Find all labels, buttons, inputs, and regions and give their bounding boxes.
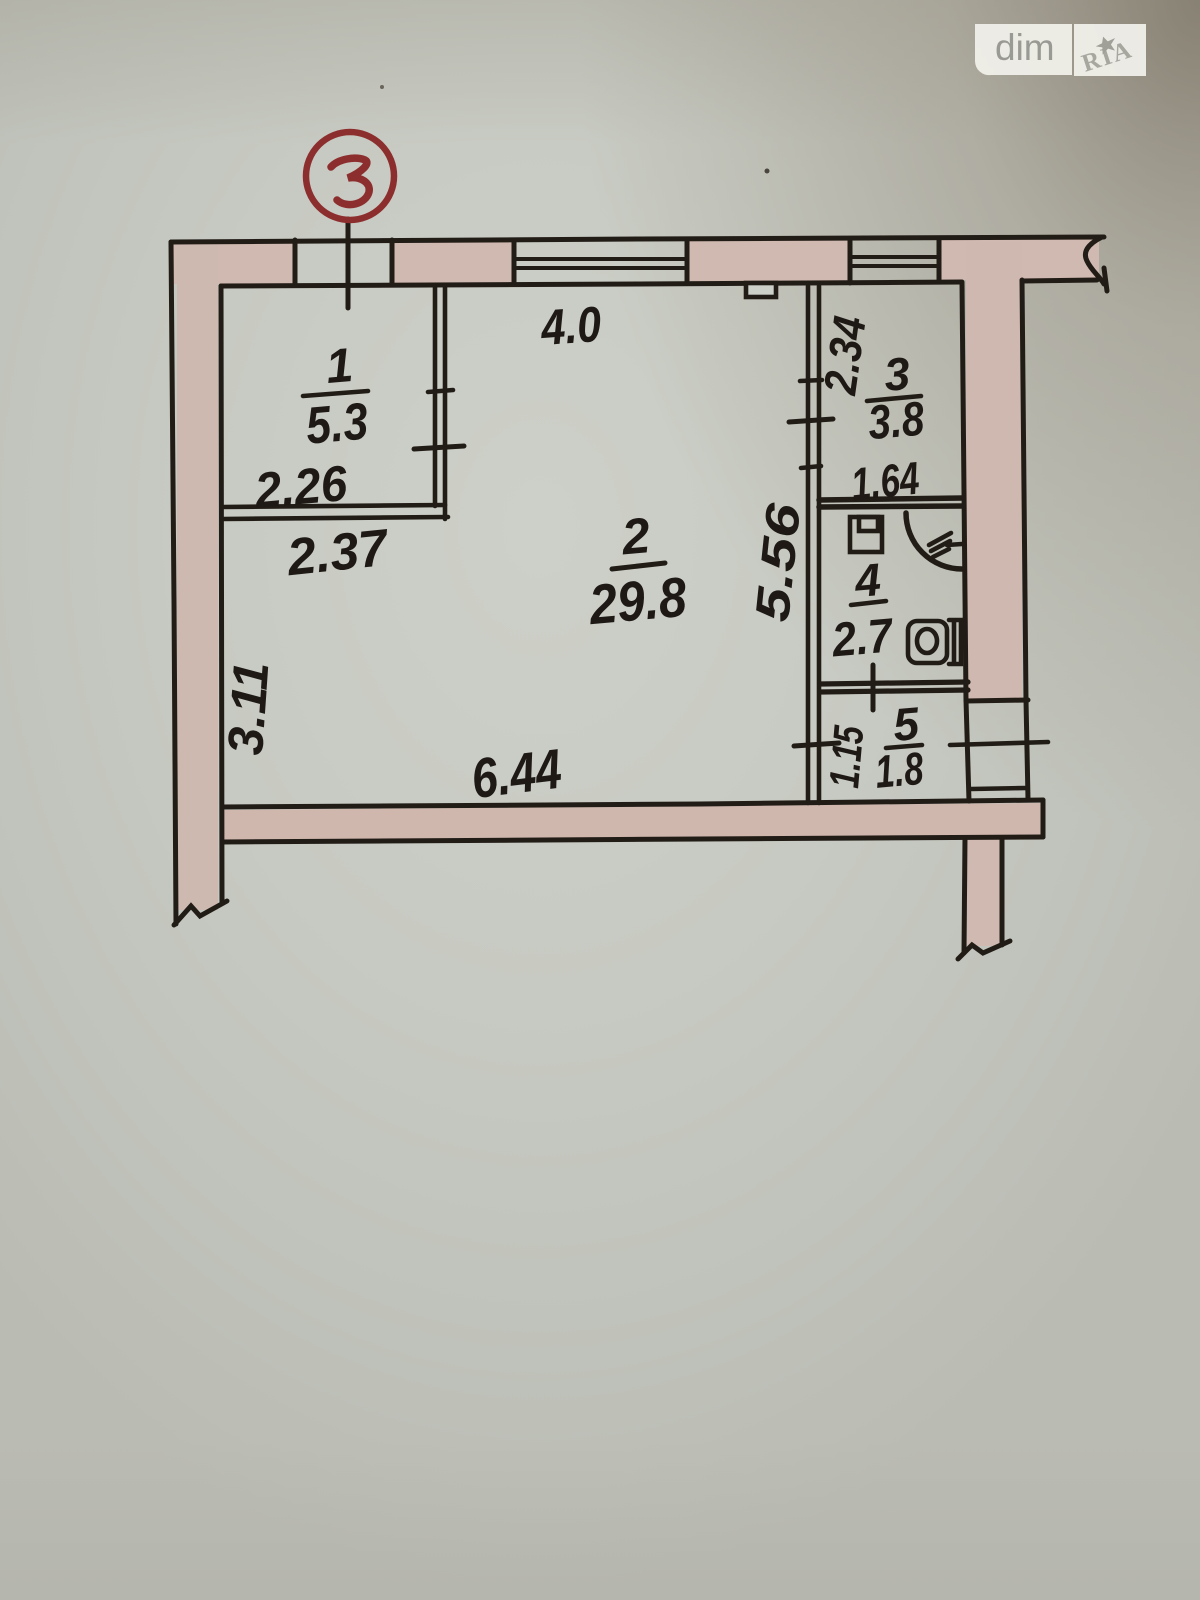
- svg-text:3.8: 3.8: [866, 393, 927, 451]
- svg-text:2.7: 2.7: [829, 609, 896, 667]
- svg-text:29.8: 29.8: [586, 565, 690, 636]
- svg-text:6.44: 6.44: [468, 737, 565, 810]
- svg-text:dim: dim: [995, 27, 1055, 68]
- svg-text:4: 4: [852, 553, 883, 607]
- svg-text:2.34: 2.34: [813, 313, 875, 398]
- svg-text:3.11: 3.11: [217, 660, 279, 757]
- svg-text:5.3: 5.3: [304, 392, 371, 455]
- svg-text:1.64: 1.64: [849, 452, 922, 511]
- svg-text:4.0: 4.0: [538, 296, 603, 356]
- svg-text:1.8: 1.8: [873, 742, 926, 798]
- svg-text:2.37: 2.37: [284, 519, 393, 587]
- svg-text:2.26: 2.26: [252, 455, 351, 519]
- svg-text:2: 2: [619, 507, 653, 565]
- svg-text:1: 1: [324, 339, 355, 394]
- svg-text:1.15: 1.15: [820, 723, 872, 789]
